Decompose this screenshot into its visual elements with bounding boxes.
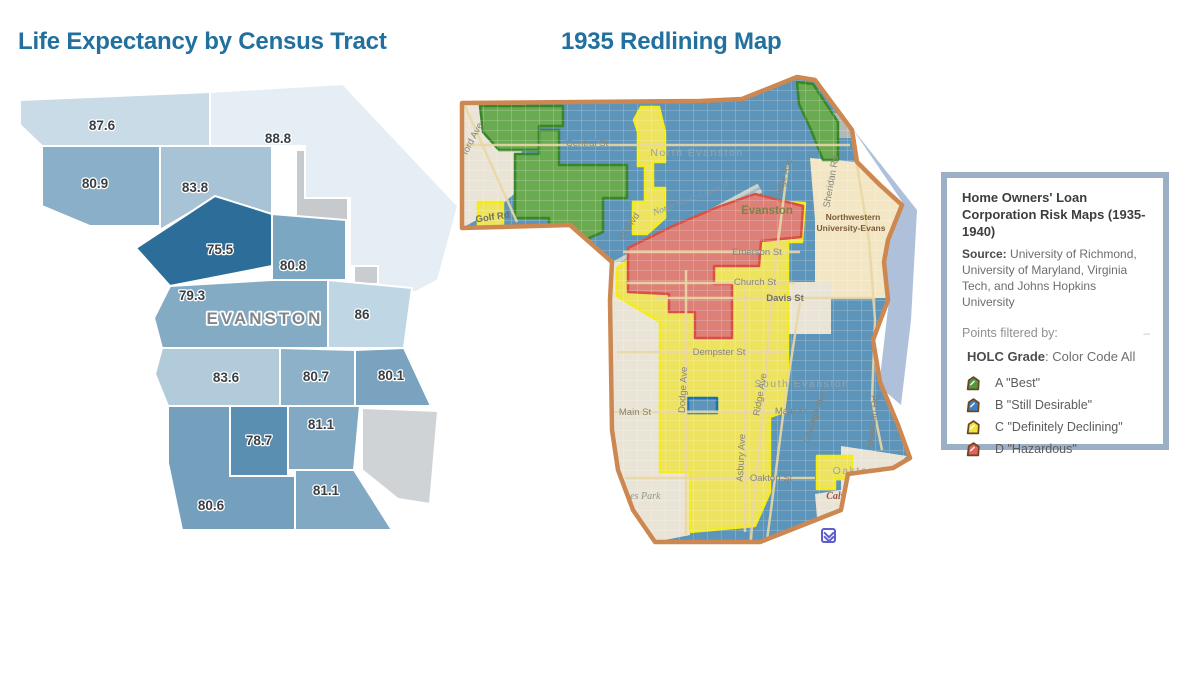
map-label-james-park: James Park xyxy=(614,491,661,502)
left-map-title: Life Expectancy by Census Tract xyxy=(18,28,387,56)
holc-grade-B-icon xyxy=(965,397,982,414)
tract-81.1 xyxy=(288,406,360,470)
map-label-south-evanston: South Evanston xyxy=(754,378,849,390)
redlining-map-canvas[interactable]: ford AveGolf RdCentral StNorth EvanstonN… xyxy=(455,70,940,565)
legend-source: Source: University of Richmond, Universi… xyxy=(962,246,1150,311)
legend-item-label: B "Still Desirable" xyxy=(995,398,1092,412)
legend-item-label: A "Best" xyxy=(995,376,1040,390)
map-label-north-evanston: North Evanston xyxy=(650,147,743,159)
tract-value-label: 75.5 xyxy=(207,242,234,257)
map-collapse-control[interactable] xyxy=(821,528,836,543)
tract-value-label: 81.1 xyxy=(313,483,340,498)
map-label-main-st: Main St xyxy=(775,406,808,417)
legend-collapse-dash[interactable]: – xyxy=(1143,326,1150,340)
right-map-title: 1935 Redlining Map xyxy=(561,28,781,56)
legend-item-grade-D[interactable]: D "Hazardous" xyxy=(965,438,1150,460)
holc-grade-C-icon xyxy=(965,419,982,436)
map-label-calvary-cemetery: Calvary Cemetery xyxy=(826,491,900,502)
tract-value-label: 83.8 xyxy=(182,180,209,195)
legend-item-grade-C[interactable]: C "Definitely Declining" xyxy=(965,416,1150,438)
legend-grade-value: : Color Code All xyxy=(1045,349,1135,364)
dashboard: Life Expectancy by Census Tract 1935 Red… xyxy=(0,0,1200,685)
tract-value-label: 80.6 xyxy=(198,498,225,513)
legend-item-grade-B[interactable]: B "Still Desirable" xyxy=(965,394,1150,416)
map-label-davis-st: Davis St xyxy=(766,293,804,304)
map-label-northwestern: Northwestern xyxy=(826,212,881,222)
tract-value-label: 80.1 xyxy=(378,368,405,383)
legend-filter-row: Points filtered by: – xyxy=(962,326,1150,340)
map-label-university-evans: University-Evans xyxy=(817,223,886,233)
life-expectancy-map-svg: 87.688.880.983.875.580.879.38683.680.780… xyxy=(10,78,460,558)
legend-items: A "Best"B "Still Desirable"C "Definitely… xyxy=(962,372,1150,460)
map-label-church-st: Church St xyxy=(734,277,777,288)
legend-item-label: D "Hazardous" xyxy=(995,442,1077,456)
map-label-emerson-st: Emerson St xyxy=(732,247,782,258)
holc-grade-A-icon xyxy=(965,375,982,392)
legend-grade-label: HOLC Grade xyxy=(967,349,1045,364)
legend-grade-row: HOLC Grade: Color Code All xyxy=(967,349,1150,364)
tract-value-label: 87.6 xyxy=(89,118,116,133)
map-label-oakton-st: Oakton St xyxy=(750,473,793,484)
redlining-map-svg: ford AveGolf RdCentral StNorth EvanstonN… xyxy=(455,70,940,565)
holc-legend-panel: Home Owners' Loan Corporation Risk Maps … xyxy=(941,172,1169,450)
map-label-evanston: Evanston xyxy=(741,205,793,217)
map-label-dempster-st: Dempster St xyxy=(693,347,746,358)
life-expectancy-choropleth: 87.688.880.983.875.580.879.38683.680.780… xyxy=(10,78,460,558)
tract-value-label: 86 xyxy=(354,307,370,322)
tract-86 xyxy=(328,280,412,348)
map-label-central-st: Central St xyxy=(566,138,609,149)
tract-value-label: 80.8 xyxy=(280,258,307,273)
legend-item-label: C "Definitely Declining" xyxy=(995,420,1123,434)
tract-value-label: 88.8 xyxy=(265,131,292,146)
tract-value-label: 81.1 xyxy=(308,417,335,432)
tract-value-label: 79.3 xyxy=(179,288,206,303)
tract-value-label: 78.7 xyxy=(246,433,272,448)
southeast-gray xyxy=(362,408,438,504)
tract-value-label: 80.7 xyxy=(303,369,329,384)
legend-item-grade-A[interactable]: A "Best" xyxy=(965,372,1150,394)
legend-title: Home Owners' Loan Corporation Risk Maps … xyxy=(962,190,1150,241)
tract-value-label: 83.6 xyxy=(213,370,240,385)
map-label-main-st: Main St xyxy=(619,407,652,418)
holc-grade-D-icon xyxy=(965,441,982,458)
legend-filter-label: Points filtered by: xyxy=(962,326,1058,340)
tract-value-label: 80.9 xyxy=(82,176,108,191)
city-name-label: EVANSTON xyxy=(207,309,324,328)
legend-source-label: Source: xyxy=(962,247,1007,261)
